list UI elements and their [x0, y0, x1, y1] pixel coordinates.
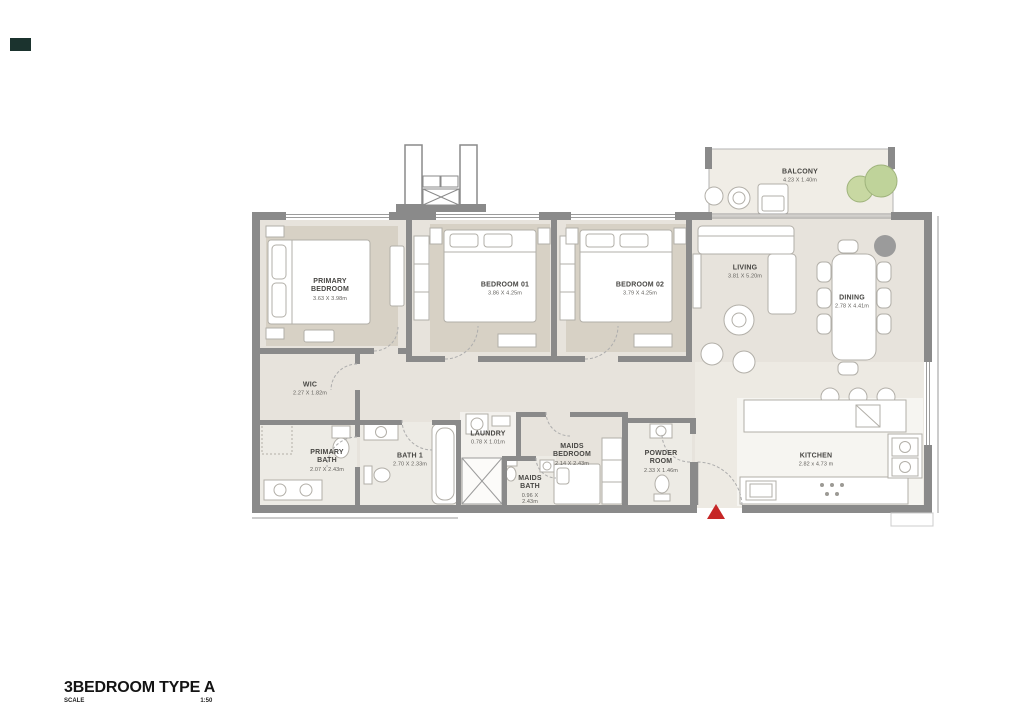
title-block: 3BEDROOM TYPE A SCALE 1:50: [64, 679, 215, 704]
scale-value: 1:50: [200, 698, 212, 704]
structural-column-icon: [874, 235, 896, 257]
scale-label: SCALE: [64, 698, 84, 704]
scale-row: SCALE 1:50: [64, 698, 215, 704]
balcony-chair-icon: [705, 187, 723, 205]
closet-icon: [462, 458, 502, 504]
plan-title: 3BEDROOM TYPE A: [64, 679, 215, 697]
floor-plan-page: PRIMARY BEDROOM 3.63 X 3.98m BEDROOM 01 …: [0, 0, 1024, 728]
service-shaft: [396, 145, 486, 215]
floor-plan-drawing: [0, 0, 1024, 728]
lounge-chair-icon: [733, 351, 755, 373]
balcony-area: [705, 147, 897, 216]
lounge-chair-icon: [701, 343, 723, 365]
